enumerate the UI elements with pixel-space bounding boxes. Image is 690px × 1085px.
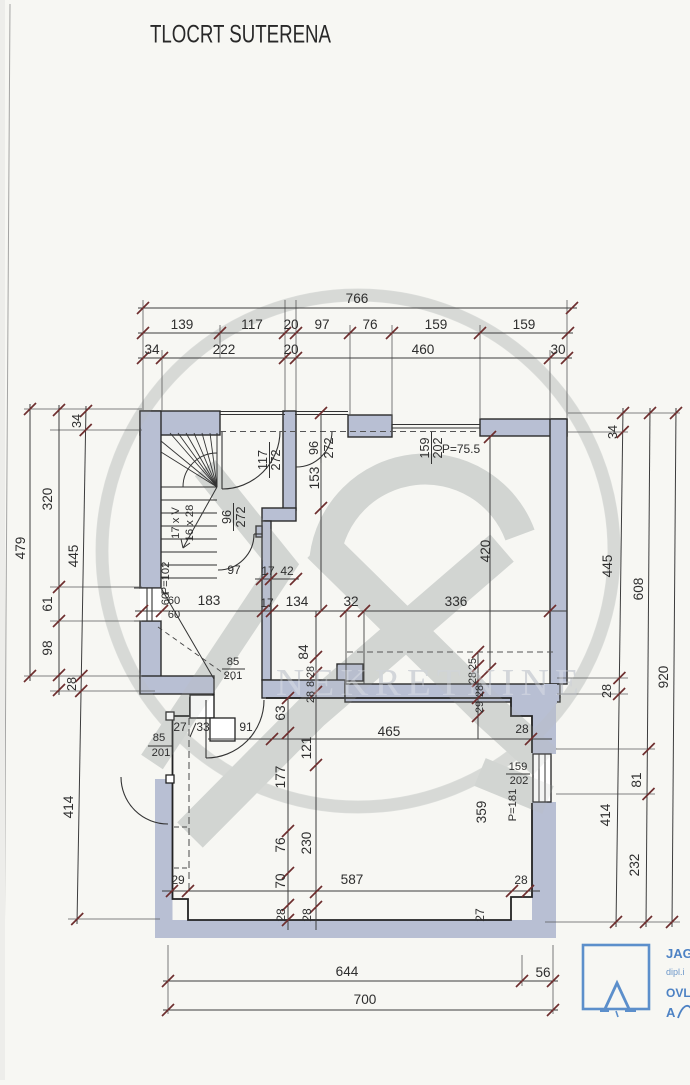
- svg-text:17 x V: 17 x V: [170, 507, 182, 539]
- svg-text:28: 28: [515, 722, 529, 736]
- svg-text:17: 17: [261, 564, 275, 578]
- svg-text:230: 230: [299, 831, 314, 854]
- svg-text:33: 33: [196, 720, 210, 734]
- svg-text:121: 121: [299, 737, 314, 760]
- svg-text:159: 159: [513, 317, 536, 332]
- svg-text:222: 222: [213, 342, 236, 357]
- svg-text:JAG: JAG: [666, 946, 690, 961]
- svg-text:700: 700: [354, 992, 377, 1007]
- svg-text:P=181: P=181: [507, 789, 519, 822]
- svg-text:28: 28: [300, 908, 314, 922]
- svg-text:42: 42: [280, 564, 294, 578]
- svg-text:159: 159: [509, 761, 528, 773]
- svg-text:NEKRETNINE: NEKRETNINE: [276, 662, 585, 704]
- svg-text:P=102: P=102: [160, 562, 172, 595]
- svg-text:56: 56: [535, 965, 550, 980]
- svg-text:460: 460: [412, 342, 435, 357]
- svg-text:60: 60: [168, 595, 180, 607]
- svg-text:76: 76: [273, 837, 288, 852]
- svg-text:OVL: OVL: [666, 986, 690, 1000]
- svg-text:134: 134: [286, 594, 309, 609]
- svg-text:587: 587: [341, 872, 364, 887]
- svg-text:96: 96: [220, 510, 234, 524]
- svg-text:dipl.i: dipl.i: [666, 967, 685, 977]
- svg-text:20: 20: [283, 317, 299, 332]
- svg-text:32: 32: [343, 594, 358, 609]
- svg-text:608: 608: [631, 578, 646, 601]
- svg-text:60: 60: [168, 609, 180, 621]
- svg-text:84: 84: [296, 644, 311, 660]
- svg-text:359: 359: [474, 801, 489, 824]
- svg-text:81: 81: [629, 772, 644, 787]
- svg-text:70: 70: [273, 873, 288, 889]
- svg-text:34: 34: [606, 425, 620, 439]
- svg-text:85: 85: [227, 656, 239, 668]
- svg-text:445: 445: [600, 555, 615, 578]
- svg-text:766: 766: [346, 291, 369, 306]
- svg-text:159: 159: [418, 437, 432, 458]
- svg-text:202: 202: [510, 775, 529, 787]
- svg-text:28: 28: [514, 873, 528, 887]
- svg-text:139: 139: [171, 317, 194, 332]
- svg-text:272: 272: [234, 506, 248, 527]
- svg-text:272: 272: [269, 449, 283, 470]
- svg-text:17: 17: [260, 596, 274, 610]
- svg-text:91: 91: [239, 720, 253, 734]
- svg-text:98: 98: [40, 640, 55, 655]
- svg-text:96: 96: [307, 441, 321, 455]
- svg-text:336: 336: [445, 594, 468, 609]
- svg-text:465: 465: [378, 724, 401, 739]
- svg-text:159: 159: [425, 317, 448, 332]
- svg-text:97: 97: [314, 317, 329, 332]
- svg-text:34: 34: [70, 414, 84, 428]
- svg-text:183: 183: [198, 593, 221, 608]
- svg-text:177: 177: [273, 766, 288, 789]
- svg-text:27: 27: [173, 720, 187, 734]
- svg-text:63: 63: [273, 705, 288, 720]
- svg-text:272: 272: [322, 437, 336, 458]
- svg-text:29: 29: [171, 873, 185, 887]
- svg-text:28: 28: [600, 684, 614, 698]
- svg-text:76: 76: [362, 317, 377, 332]
- svg-text:153: 153: [307, 467, 322, 490]
- svg-text:479: 479: [13, 537, 28, 560]
- svg-text:414: 414: [598, 803, 613, 826]
- svg-text:TLOCRT SUTERENA: TLOCRT SUTERENA: [150, 21, 331, 49]
- svg-text:28: 28: [274, 908, 288, 922]
- svg-text:20: 20: [283, 342, 299, 357]
- svg-text:201: 201: [224, 670, 243, 682]
- svg-text:28: 28: [65, 677, 79, 691]
- svg-text:644: 644: [336, 964, 359, 979]
- svg-text:117: 117: [256, 450, 270, 470]
- svg-text:30: 30: [550, 342, 566, 357]
- svg-text:97: 97: [227, 563, 241, 577]
- svg-text:920: 920: [656, 665, 671, 688]
- svg-text:420: 420: [478, 539, 493, 562]
- svg-text:232: 232: [627, 854, 642, 877]
- svg-text:85: 85: [153, 732, 165, 744]
- svg-text:445: 445: [66, 545, 81, 568]
- svg-text:201: 201: [152, 747, 171, 759]
- svg-text:P=75.5: P=75.5: [442, 442, 481, 456]
- svg-text:34: 34: [144, 342, 160, 357]
- svg-text:A: A: [666, 1005, 676, 1020]
- svg-text:27: 27: [473, 908, 487, 922]
- svg-text:320: 320: [40, 487, 55, 510]
- svg-text:16 x 28: 16 x 28: [184, 505, 196, 542]
- svg-text:414: 414: [61, 795, 76, 818]
- svg-text:117: 117: [241, 317, 263, 332]
- svg-text:61: 61: [40, 596, 55, 611]
